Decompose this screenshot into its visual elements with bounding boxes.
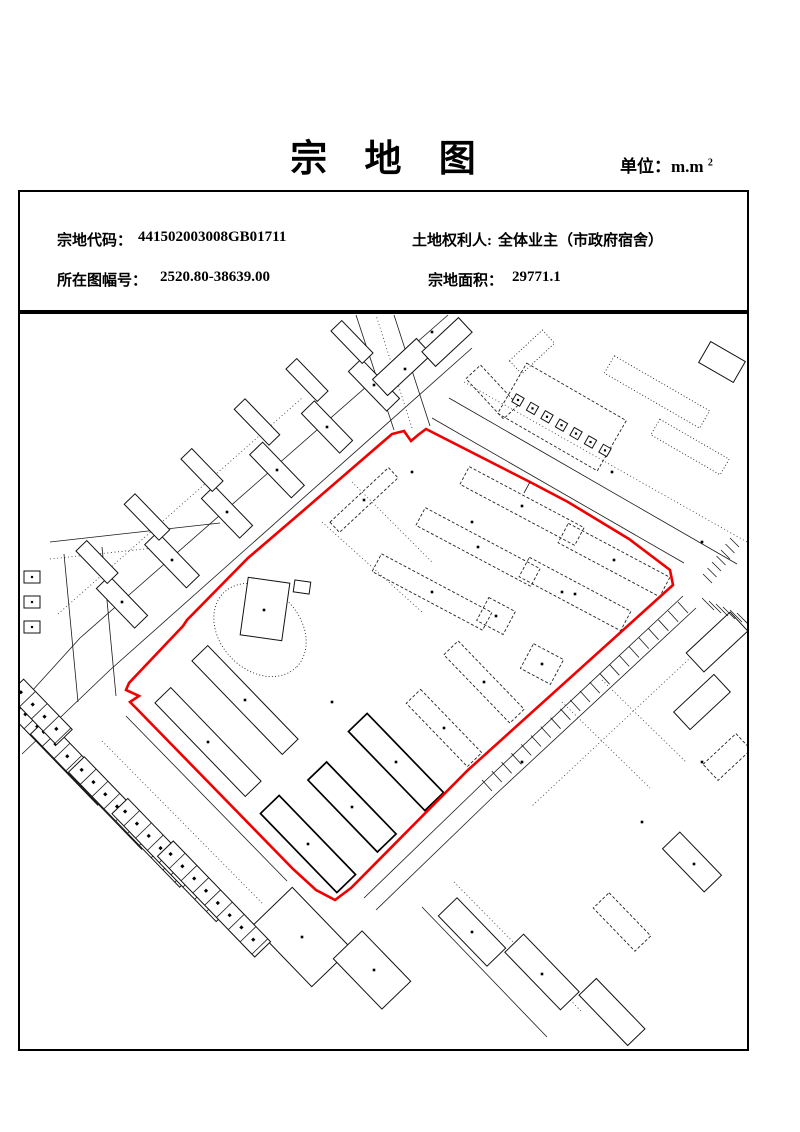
map-point-dot bbox=[363, 499, 366, 502]
terrace-row bbox=[157, 841, 270, 957]
map-point-dot bbox=[611, 471, 614, 474]
map-point-dot bbox=[31, 576, 33, 578]
map-point-dot bbox=[431, 591, 434, 594]
parcel-code-label: 宗地代码： bbox=[57, 229, 132, 250]
street-hatch bbox=[629, 647, 639, 658]
unit-label: 单位：m.m 2 bbox=[620, 152, 713, 177]
street-hatch bbox=[511, 753, 521, 764]
street-hatch bbox=[560, 709, 570, 720]
map-point-dot bbox=[443, 727, 446, 730]
building-footprint bbox=[686, 612, 747, 672]
map-point-dot bbox=[431, 331, 434, 334]
map-point-dot bbox=[121, 601, 124, 604]
building-footprint bbox=[505, 934, 579, 1010]
map-point-dot bbox=[171, 559, 174, 562]
building-footprint bbox=[331, 321, 373, 364]
street-hatch bbox=[639, 638, 649, 649]
building-footprint bbox=[373, 338, 432, 395]
map-point-dot bbox=[517, 399, 519, 401]
street-hatch bbox=[703, 574, 712, 583]
street-edge bbox=[449, 398, 737, 564]
map-point-dot bbox=[411, 471, 414, 474]
building-footprint bbox=[76, 541, 118, 584]
parcel-code-value: 441502003008GB01711 bbox=[138, 229, 286, 246]
area-value: 29771.1 bbox=[512, 269, 561, 286]
map-point-dot bbox=[307, 843, 310, 846]
building-footprint bbox=[604, 356, 709, 428]
map-canvas bbox=[18, 312, 749, 1051]
map-point-dot bbox=[326, 426, 329, 429]
building-footprint bbox=[699, 342, 746, 383]
street-hatch bbox=[619, 655, 629, 666]
map-point-dot bbox=[331, 701, 334, 704]
boundary-spur bbox=[524, 482, 530, 493]
courtyard-line bbox=[352, 482, 432, 562]
building-footprint bbox=[286, 359, 328, 402]
street-edge-dotted bbox=[562, 702, 650, 788]
map-point-dot bbox=[589, 441, 591, 443]
map-point-dot bbox=[575, 433, 577, 435]
building-footprint bbox=[663, 832, 722, 892]
map-point-dot bbox=[483, 681, 486, 684]
unit-superscript: 2 bbox=[708, 157, 713, 168]
courtyard-line bbox=[322, 522, 422, 612]
street-hatch bbox=[521, 744, 531, 755]
building-footprint bbox=[703, 734, 747, 781]
building-footprint bbox=[293, 580, 311, 594]
street-hatch bbox=[502, 762, 512, 773]
street-hatch bbox=[570, 700, 580, 711]
street-edge bbox=[432, 418, 684, 563]
map-svg bbox=[20, 314, 747, 1049]
owner-value: 全体业主（市政府宿舍） bbox=[498, 229, 663, 250]
street-hatch bbox=[482, 780, 492, 791]
street-edge bbox=[50, 523, 220, 542]
map-point-dot bbox=[641, 821, 644, 824]
building-footprint bbox=[234, 399, 280, 445]
map-point-dot bbox=[395, 761, 398, 764]
street-edge bbox=[376, 608, 696, 910]
street-hatch bbox=[649, 629, 659, 640]
map-point-dot bbox=[226, 511, 229, 514]
map-point-dot bbox=[373, 969, 376, 972]
street-hatch bbox=[492, 771, 502, 782]
building-footprint bbox=[181, 449, 223, 492]
map-point-dot bbox=[263, 609, 266, 612]
map-point-dot bbox=[207, 741, 210, 744]
map-point-dot bbox=[574, 593, 577, 596]
street-hatch bbox=[668, 611, 678, 622]
street-hatch bbox=[609, 664, 619, 675]
building-footprint bbox=[674, 674, 731, 729]
map-point-dot bbox=[561, 591, 564, 594]
building-footprint bbox=[651, 419, 729, 475]
map-point-dot bbox=[521, 761, 524, 764]
street-hatch bbox=[726, 544, 735, 553]
building-footprint bbox=[509, 330, 554, 374]
street-hatch bbox=[590, 682, 600, 693]
map-point-dot bbox=[604, 449, 606, 451]
map-point-dot bbox=[373, 384, 376, 387]
street-edge bbox=[64, 554, 78, 702]
street-hatch bbox=[531, 736, 541, 747]
street-edge bbox=[110, 348, 472, 670]
map-point-dot bbox=[301, 936, 304, 939]
map-point-dot bbox=[693, 863, 696, 866]
map-point-dot bbox=[560, 424, 562, 426]
building-footprint bbox=[593, 893, 651, 951]
map-point-dot bbox=[351, 806, 354, 809]
parcel-map-document: 宗 地 图 单位：m.m 2 宗地代码： 441502003008GB01711… bbox=[0, 0, 800, 1132]
map-point-dot bbox=[471, 931, 474, 934]
street-hatch bbox=[730, 538, 739, 547]
map-point-dot bbox=[495, 615, 498, 618]
street-hatch bbox=[541, 727, 551, 738]
owner-label: 土地权利人: bbox=[412, 229, 492, 250]
map-point-dot bbox=[471, 521, 474, 524]
map-point-dot bbox=[541, 973, 544, 976]
map-point-dot bbox=[531, 407, 533, 409]
sheet-number-value: 2520.80-38639.00 bbox=[160, 269, 270, 286]
street-hatch bbox=[717, 556, 726, 565]
street-hatch bbox=[580, 691, 590, 702]
street-hatch bbox=[551, 718, 561, 729]
street-edge-dotted bbox=[602, 680, 686, 762]
map-point-dot bbox=[613, 559, 616, 562]
map-point-dot bbox=[546, 416, 548, 418]
map-point-dot bbox=[31, 626, 33, 628]
map-point-dot bbox=[276, 469, 279, 472]
building-footprint bbox=[579, 978, 645, 1045]
map-point-dot bbox=[521, 505, 524, 508]
map-point-dot bbox=[31, 601, 33, 603]
sheet-number-label: 所在图幅号： bbox=[57, 269, 147, 290]
street-hatch bbox=[658, 620, 668, 631]
parcel-info-box: 宗地代码： 441502003008GB01711 土地权利人: 全体业主（市政… bbox=[18, 190, 749, 312]
area-label: 宗地面积： bbox=[428, 269, 503, 290]
map-point-dot bbox=[477, 546, 480, 549]
map-point-dot bbox=[404, 368, 407, 371]
street-hatch bbox=[708, 568, 717, 577]
map-point-dot bbox=[701, 761, 704, 764]
street-hatch bbox=[712, 562, 721, 571]
map-point-dot bbox=[541, 663, 544, 666]
street-hatch bbox=[678, 602, 688, 613]
map-point-dot bbox=[701, 541, 704, 544]
map-point-dot bbox=[244, 699, 247, 702]
building-footprint bbox=[422, 318, 472, 367]
